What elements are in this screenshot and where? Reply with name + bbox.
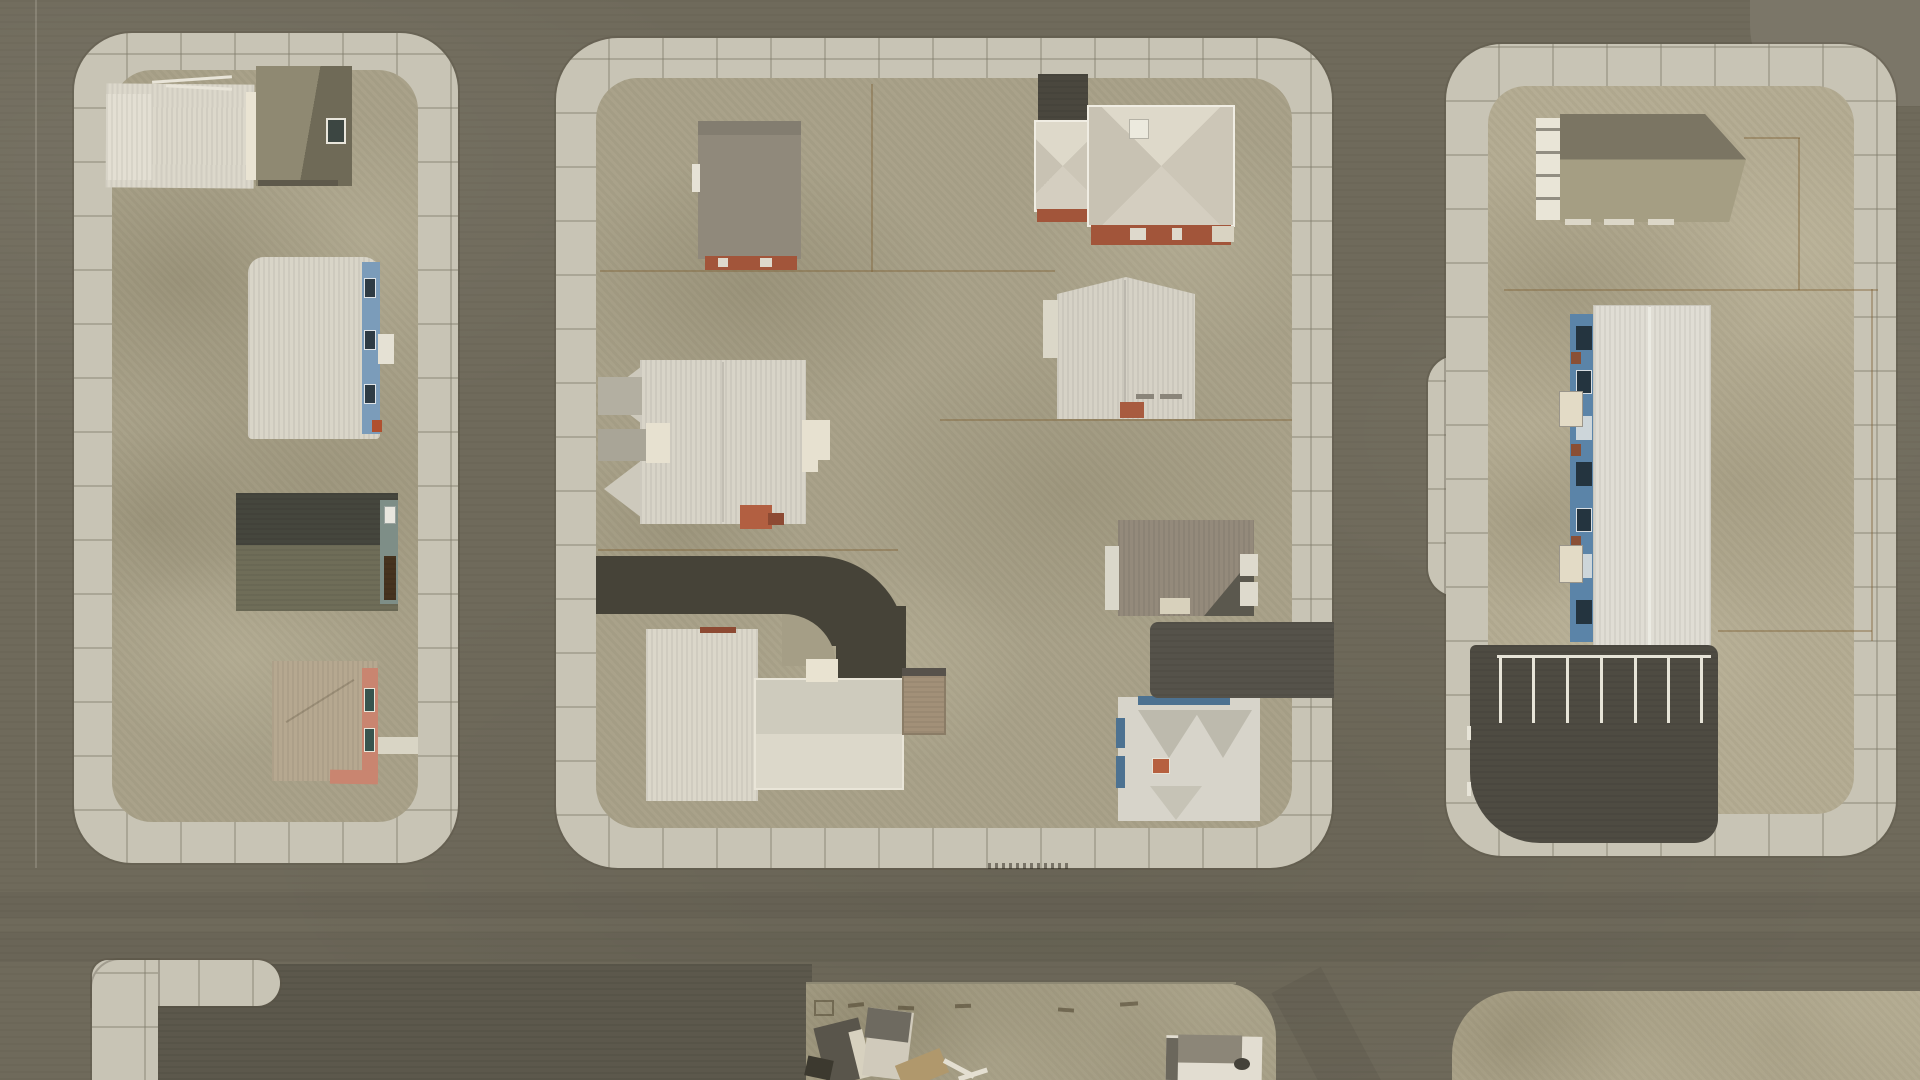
- parking-stall-line-7: [1700, 657, 1703, 723]
- house-a2-window: [326, 118, 346, 144]
- parking-edge-tick-1: [1467, 726, 1471, 740]
- building-c2-ridge: [1648, 307, 1651, 645]
- house-b4-garage-mark-1: [1136, 394, 1154, 399]
- house-a4-window: [384, 506, 396, 524]
- house-a1-wall-east: [246, 92, 256, 180]
- street-left-curb-seam: [35, 0, 37, 868]
- house-a3-roof: [248, 257, 380, 439]
- parking-stall-line-4: [1600, 657, 1603, 723]
- building-c2-window-4: [1576, 462, 1592, 486]
- building-c2-trim-1: [1571, 352, 1581, 364]
- fence-east-4: [1718, 630, 1872, 632]
- house-b6-entry: [806, 659, 838, 682]
- parking-edge-tick-2: [1467, 782, 1471, 796]
- house-b4-garage-mark-2: [1160, 394, 1182, 399]
- house-b1-brick-step-1: [718, 258, 728, 267]
- fence-center-4: [598, 549, 898, 551]
- parking-stall-line-2: [1532, 657, 1535, 723]
- parking-stall-line-1: [1499, 657, 1502, 723]
- barn-c1-wall-west: [1536, 118, 1564, 220]
- house-b4-patio: [1043, 300, 1058, 358]
- sidewalk-elbow-stem: [92, 960, 158, 1080]
- house-a5-window-1: [364, 688, 375, 712]
- map-canvas[interactable]: [0, 0, 1920, 1080]
- house-b1-door: [692, 164, 700, 192]
- house-b6-garage-shadow: [902, 668, 946, 676]
- house-b1-brick-step-2: [760, 258, 772, 267]
- garage-b2-hip-roof: [1034, 120, 1092, 212]
- house-b8-patio-1: [1240, 554, 1258, 576]
- house-b1-roof: [698, 121, 801, 259]
- house-a5-wall-south: [330, 770, 378, 785]
- house-a3-window-1: [364, 278, 376, 298]
- parking-stall-line-3: [1566, 657, 1569, 723]
- house-b5-porch-west: [646, 423, 670, 463]
- house-b8-patio-2: [1240, 582, 1258, 606]
- house-b4-porch-brick: [1120, 402, 1144, 418]
- house-b6-garage: [902, 671, 946, 735]
- south-fence-dash-3: [955, 1004, 971, 1009]
- south-fence-dash-2: [898, 1006, 914, 1011]
- parking-stall-line-5: [1634, 657, 1637, 723]
- house-b7-chimney: [1152, 758, 1170, 774]
- fence-center-1: [600, 270, 1055, 272]
- driveway-b5-pad-2: [598, 429, 646, 461]
- street-tire-band-1: [0, 892, 1920, 918]
- barn-c1-stoop-1: [1565, 219, 1591, 225]
- house-b6-red-sliver: [700, 627, 736, 633]
- house-b4-ridge: [1124, 280, 1126, 416]
- south-house-edge: [1166, 1038, 1179, 1080]
- fence-east-2: [1798, 138, 1800, 290]
- house-b3-stoop: [1212, 226, 1234, 242]
- house-b3-door-2: [1172, 228, 1182, 240]
- building-c2-window-7: [1576, 600, 1592, 624]
- barn-c1-roof: [1560, 114, 1746, 222]
- house-b5-patio-east: [802, 420, 830, 460]
- house-a5-window-2: [364, 728, 375, 752]
- south-house-window: [1234, 1058, 1250, 1070]
- road-stub-east: [1150, 622, 1334, 698]
- barn-c1-stoop-2: [1604, 219, 1634, 225]
- house-a3-porch: [378, 334, 394, 364]
- house-b6-wing-horizontal: [754, 678, 904, 790]
- fence-center-2: [871, 84, 873, 272]
- house-a4-door: [384, 556, 396, 600]
- shed-2-roof: [864, 1007, 911, 1042]
- house-a3-window-3: [364, 384, 376, 404]
- driveway-b2: [1038, 74, 1088, 122]
- house-a5-walkway: [378, 737, 418, 754]
- curb-tick-marks: [988, 863, 1070, 869]
- house-b3-chimney: [1129, 119, 1149, 139]
- driveway-b5-pad-1: [598, 377, 642, 415]
- house-b3-door-1: [1130, 228, 1146, 240]
- building-c2-ac-2: [1559, 545, 1583, 583]
- parking-stall-line-6: [1667, 657, 1670, 723]
- house-a2-base: [258, 180, 338, 186]
- parking-lot: [1470, 645, 1718, 843]
- house-b8-drive-strip: [1105, 546, 1119, 610]
- house-a4-roof-north: [236, 493, 398, 545]
- house-b5-chimney-nub: [768, 513, 784, 525]
- lane-vertical: [836, 606, 906, 678]
- south-house-roof: [1178, 1034, 1242, 1063]
- house-b6-wing-vertical: [646, 629, 758, 801]
- house-b3-brick: [1091, 225, 1231, 245]
- building-c2-ac-1: [1559, 391, 1583, 427]
- house-b7-blue-west-2: [1116, 756, 1125, 788]
- house-a1-wing: [106, 94, 152, 180]
- fence-east-1: [1504, 289, 1878, 291]
- building-c2-roof: [1593, 305, 1711, 647]
- barn-c1-stoop-3: [1648, 219, 1674, 225]
- fence-east-3: [1871, 289, 1873, 641]
- fence-east-5: [1744, 137, 1800, 139]
- street-diagonal-shade: [1271, 967, 1384, 1080]
- house-b5-ridge: [722, 362, 724, 522]
- house-a3-trim: [372, 420, 382, 432]
- garage-b2-brick: [1037, 209, 1091, 222]
- lane-horizontal: [596, 556, 782, 614]
- house-a5-wall-east: [362, 668, 378, 774]
- south-fence-bracket: [814, 1000, 834, 1016]
- house-b5-patio-east-step: [802, 458, 818, 472]
- building-c2-trim-2: [1571, 444, 1581, 456]
- house-a3-window-2: [364, 330, 376, 350]
- house-b3-hip-roof: [1087, 105, 1235, 227]
- block-southeast-grass: [1452, 991, 1920, 1080]
- house-a4-roof-south: [236, 545, 398, 611]
- building-c2-window-5: [1576, 508, 1592, 532]
- house-b7-blue-west-1: [1116, 718, 1125, 748]
- parking-header-line: [1497, 655, 1711, 658]
- block-south-curb: [806, 982, 1236, 984]
- street-tire-band-2: [0, 932, 1920, 962]
- fence-center-3: [940, 419, 1292, 421]
- house-b8-porch: [1160, 598, 1190, 614]
- building-c2-window-1: [1576, 326, 1592, 350]
